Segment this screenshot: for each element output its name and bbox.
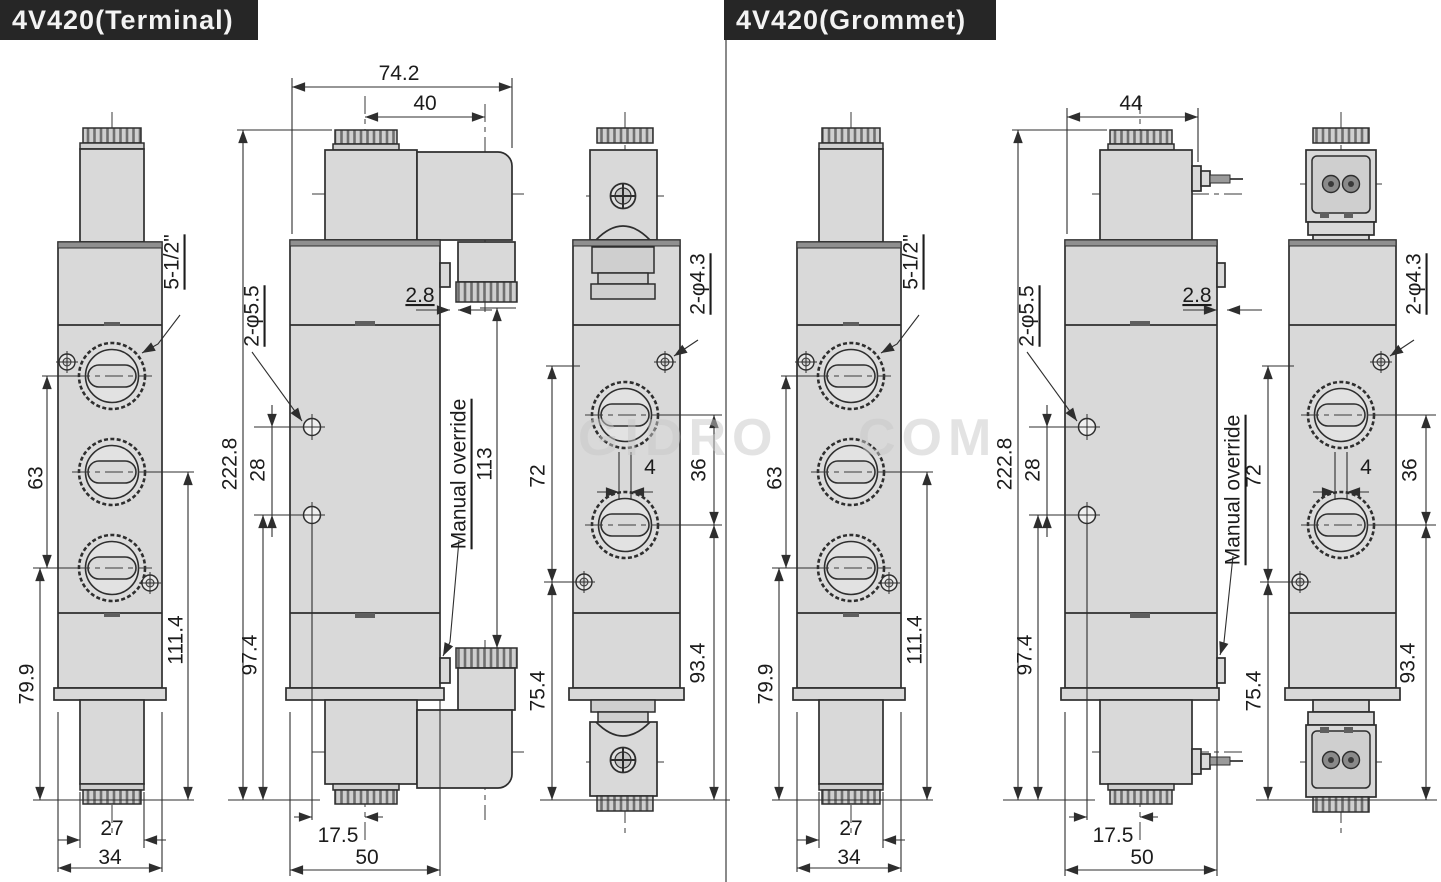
dim-17-5: 17.5 — [1093, 824, 1134, 847]
dim-28: 28 — [1022, 458, 1045, 481]
dim-28: 28 — [247, 458, 270, 481]
dim-36: 36 — [1399, 458, 1422, 481]
dim-34: 34 — [837, 846, 861, 869]
dim-4: 4 — [1360, 456, 1372, 479]
manual-override-label: Manual override — [448, 399, 471, 550]
grommet-front-view: 44 222.8 97.4 28 2-φ5.5 2.8 Manual overr… — [994, 92, 1263, 876]
dim-2-8: 2.8 — [405, 284, 434, 307]
dim-79-9: 79.9 — [16, 664, 39, 705]
dim-63: 63 — [764, 466, 787, 489]
port-size-label: 5-1/2" — [900, 234, 923, 289]
title-terminal: 4V420(Terminal) — [0, 0, 258, 40]
valve-dimension-drawing-page: 63 79.9 111.4 5-1/2" 27 34 — [0, 0, 1441, 882]
terminal-side-view: 72 75.4 36 93.4 4 2-φ4.3 — [527, 112, 731, 836]
dim-63: 63 — [25, 466, 48, 489]
dim-17-5: 17.5 — [318, 824, 359, 847]
dim-50: 50 — [1130, 846, 1153, 869]
dim-111-4: 111.4 — [165, 615, 188, 665]
dim-34: 34 — [98, 846, 122, 869]
dim-93-4: 93.4 — [1397, 642, 1420, 683]
dim-111-4: 111.4 — [904, 615, 927, 665]
mount-holes-label: 2-φ5.5 — [1016, 285, 1039, 346]
terminal-front-view: 74.2 40 222.8 97.4 28 2-φ5.5 2.8 113 Man… — [219, 62, 525, 876]
dim-27: 27 — [839, 817, 862, 840]
pilot-holes-label: 2-φ4.3 — [687, 253, 710, 314]
dim-97-4: 97.4 — [1014, 634, 1037, 675]
dim-44: 44 — [1119, 92, 1143, 115]
dim-72: 72 — [1243, 464, 1266, 487]
dim-79-9: 79.9 — [755, 664, 778, 705]
dim-72: 72 — [527, 464, 550, 487]
dim-222-8: 222.8 — [219, 438, 242, 491]
manual-override-label: Manual override — [1222, 415, 1245, 566]
title-grommet: 4V420(Grommet) — [724, 0, 996, 40]
watermark-right: COM — [858, 408, 997, 468]
dim-74-2: 74.2 — [379, 62, 420, 85]
dim-93-4: 93.4 — [687, 642, 710, 683]
grommet-side-view: 72 75.4 36 93.4 4 2-φ4.3 — [1243, 112, 1438, 836]
watermark-left: GIDRO — [578, 408, 778, 468]
dim-2-8: 2.8 — [1182, 284, 1211, 307]
dim-113: 113 — [474, 447, 497, 480]
dim-75-4: 75.4 — [1243, 670, 1266, 711]
dim-50: 50 — [355, 846, 378, 869]
dim-97-4: 97.4 — [239, 634, 262, 675]
dim-40: 40 — [413, 92, 436, 115]
terminal-port-view: 63 79.9 111.4 5-1/2" 27 34 — [16, 112, 195, 872]
mount-holes-label: 2-φ5.5 — [241, 285, 264, 346]
pilot-holes-label: 2-φ4.3 — [1403, 253, 1426, 314]
dim-27: 27 — [100, 817, 123, 840]
port-size-label: 5-1/2" — [161, 234, 184, 289]
grommet-port-view: 63 79.9 111.4 5-1/2" 27 34 — [755, 112, 934, 872]
dim-75-4: 75.4 — [527, 670, 550, 711]
